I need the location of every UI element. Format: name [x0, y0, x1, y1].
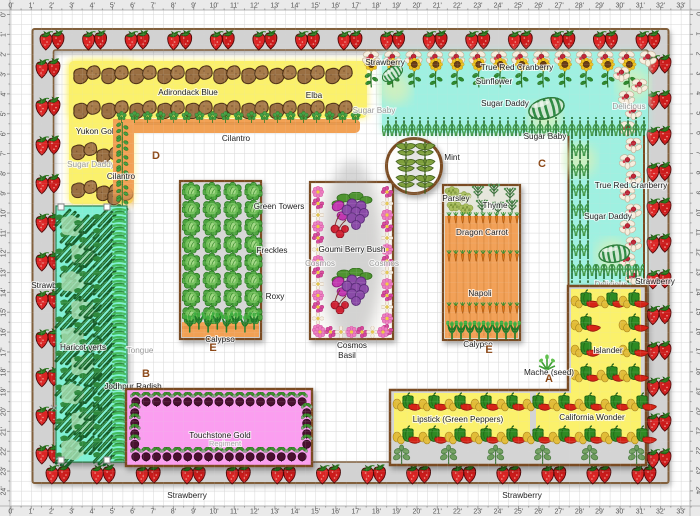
svg-text:19': 19': [392, 3, 401, 10]
svg-text:11': 11': [1, 229, 8, 238]
svg-text:21': 21': [695, 427, 700, 436]
svg-text:15': 15': [311, 509, 320, 516]
svg-text:8': 8': [695, 171, 700, 176]
svg-text:8': 8': [1, 171, 8, 176]
svg-text:15': 15': [311, 3, 320, 10]
svg-text:3': 3': [695, 71, 700, 76]
svg-text:2': 2': [49, 509, 54, 516]
svg-text:18': 18': [372, 509, 381, 516]
svg-text:7': 7': [150, 3, 155, 10]
svg-text:24': 24': [1, 486, 8, 495]
svg-text:15': 15': [1, 308, 8, 317]
svg-text:11': 11': [695, 229, 700, 238]
svg-text:33': 33': [676, 509, 685, 516]
svg-text:9': 9': [1, 191, 8, 196]
svg-text:5': 5': [110, 509, 115, 516]
svg-text:26': 26': [534, 509, 543, 516]
svg-text:17': 17': [352, 509, 361, 516]
svg-text:6': 6': [130, 509, 135, 516]
svg-text:6': 6': [695, 131, 700, 136]
svg-text:4': 4': [90, 3, 95, 10]
svg-text:21': 21': [433, 3, 442, 10]
svg-text:10': 10': [209, 509, 218, 516]
svg-text:20': 20': [412, 509, 421, 516]
svg-text:29': 29': [595, 509, 604, 516]
svg-text:21': 21': [433, 509, 442, 516]
svg-text:25': 25': [514, 509, 523, 516]
svg-text:12': 12': [1, 248, 8, 257]
svg-text:9': 9': [695, 191, 700, 196]
svg-text:18': 18': [1, 367, 8, 376]
svg-text:26': 26': [534, 3, 543, 10]
svg-text:32': 32': [656, 3, 665, 10]
svg-text:11': 11': [230, 3, 239, 10]
svg-text:24': 24': [695, 486, 700, 495]
svg-text:10': 10': [695, 208, 700, 217]
svg-text:0': 0': [8, 509, 13, 516]
svg-text:32': 32': [656, 509, 665, 516]
svg-text:7': 7': [1, 151, 8, 156]
svg-text:13': 13': [1, 268, 8, 277]
svg-text:1': 1': [1, 32, 8, 37]
svg-text:24': 24': [494, 3, 503, 10]
svg-text:14': 14': [291, 3, 300, 10]
svg-text:18': 18': [695, 367, 700, 376]
svg-text:31': 31': [636, 509, 645, 516]
svg-text:5': 5': [1, 111, 8, 116]
svg-text:17': 17': [1, 347, 8, 356]
svg-text:5': 5': [695, 111, 700, 116]
svg-text:16': 16': [331, 509, 340, 516]
svg-text:2': 2': [49, 3, 54, 10]
svg-text:11': 11': [230, 509, 239, 516]
svg-text:7': 7': [695, 151, 700, 156]
svg-text:4': 4': [1, 91, 8, 96]
svg-text:20': 20': [412, 3, 421, 10]
svg-text:3': 3': [69, 509, 74, 516]
svg-text:13': 13': [695, 268, 700, 277]
svg-text:12': 12': [250, 509, 259, 516]
svg-text:12': 12': [250, 3, 259, 10]
svg-text:8': 8': [171, 3, 176, 10]
svg-text:1': 1': [29, 509, 34, 516]
svg-text:20': 20': [695, 407, 700, 416]
svg-text:6': 6': [1, 131, 8, 136]
svg-text:20': 20': [1, 407, 8, 416]
svg-text:9': 9': [191, 509, 196, 516]
svg-text:17': 17': [695, 347, 700, 356]
svg-text:28': 28': [575, 3, 584, 10]
svg-text:18': 18': [372, 3, 381, 10]
svg-text:1': 1': [695, 32, 700, 37]
svg-text:14': 14': [1, 288, 8, 297]
svg-text:6': 6': [130, 3, 135, 10]
svg-text:4': 4': [90, 509, 95, 516]
svg-text:3': 3': [69, 3, 74, 10]
svg-text:22': 22': [453, 509, 462, 516]
svg-text:27': 27': [555, 3, 564, 10]
svg-text:33': 33': [676, 3, 685, 10]
svg-text:2': 2': [1, 52, 8, 57]
svg-text:25': 25': [514, 3, 523, 10]
svg-text:13': 13': [270, 509, 279, 516]
svg-text:0': 0': [1, 12, 8, 17]
svg-text:22': 22': [1, 447, 8, 456]
svg-text:29': 29': [595, 3, 604, 10]
svg-text:10': 10': [209, 3, 218, 10]
svg-text:19': 19': [1, 387, 8, 396]
svg-text:0': 0': [695, 12, 700, 17]
svg-text:30': 30': [615, 3, 624, 10]
svg-text:16': 16': [695, 328, 700, 337]
svg-text:15': 15': [695, 308, 700, 317]
svg-text:9': 9': [191, 3, 196, 10]
svg-text:13': 13': [270, 3, 279, 10]
svg-text:30': 30': [615, 509, 624, 516]
svg-text:14': 14': [695, 288, 700, 297]
svg-text:23': 23': [1, 467, 8, 476]
svg-text:19': 19': [695, 387, 700, 396]
svg-text:4': 4': [695, 91, 700, 96]
svg-text:7': 7': [150, 509, 155, 516]
svg-text:23': 23': [695, 467, 700, 476]
svg-text:17': 17': [352, 3, 361, 10]
svg-text:21': 21': [1, 427, 8, 436]
svg-text:23': 23': [473, 509, 482, 516]
svg-text:31': 31': [636, 3, 645, 10]
svg-text:2': 2': [695, 52, 700, 57]
svg-text:19': 19': [392, 509, 401, 516]
svg-text:10': 10': [1, 208, 8, 217]
svg-text:8': 8': [171, 509, 176, 516]
svg-text:27': 27': [555, 509, 564, 516]
svg-text:5': 5': [110, 3, 115, 10]
svg-text:16': 16': [1, 328, 8, 337]
svg-text:24': 24': [494, 509, 503, 516]
svg-text:28': 28': [575, 509, 584, 516]
svg-text:0': 0': [8, 3, 13, 10]
svg-text:1': 1': [29, 3, 34, 10]
svg-text:23': 23': [473, 3, 482, 10]
svg-text:3': 3': [1, 71, 8, 76]
svg-text:22': 22': [453, 3, 462, 10]
svg-text:16': 16': [331, 3, 340, 10]
svg-text:14': 14': [291, 509, 300, 516]
svg-text:12': 12': [695, 248, 700, 257]
svg-text:22': 22': [695, 447, 700, 456]
